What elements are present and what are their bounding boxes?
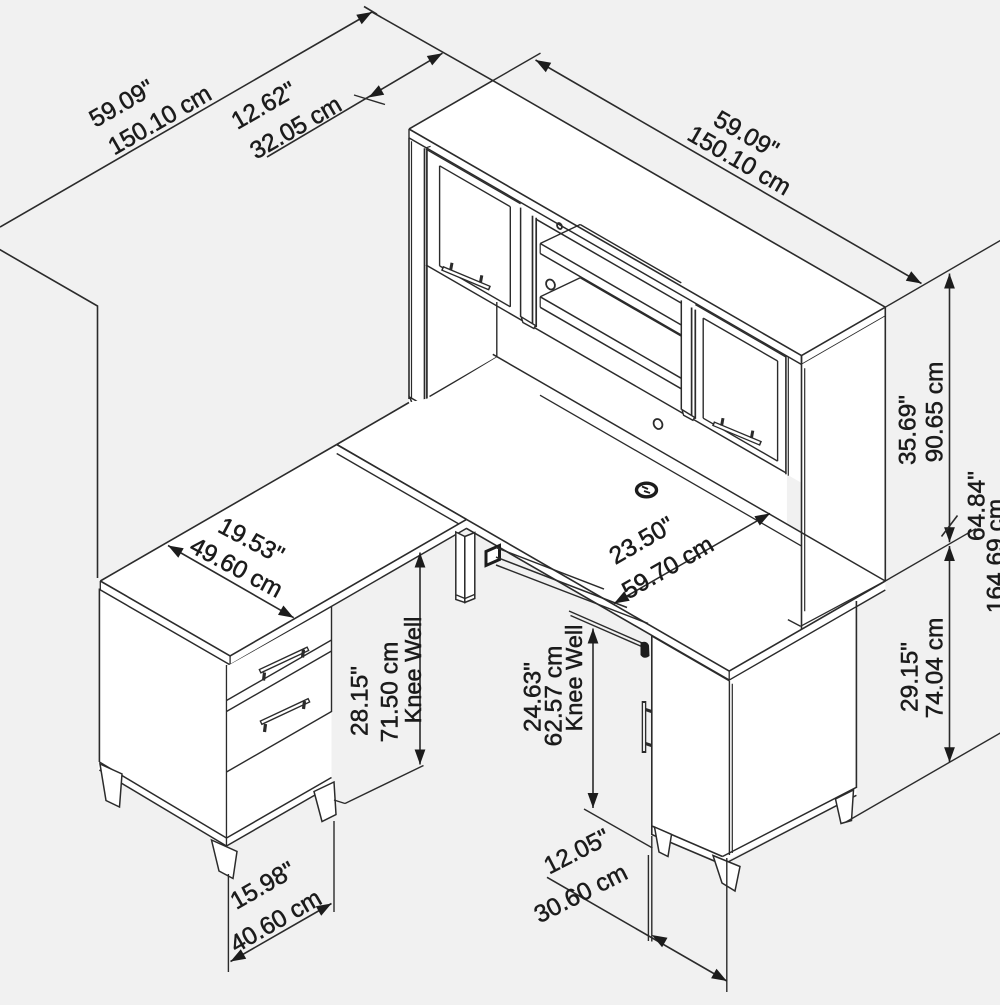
svg-text:28.15": 28.15" bbox=[347, 666, 374, 736]
svg-text:35.69": 35.69" bbox=[895, 395, 922, 465]
svg-text:Knee Well: Knee Well bbox=[400, 617, 426, 724]
svg-text:29.15": 29.15" bbox=[897, 642, 924, 712]
svg-text:164.69 cm: 164.69 cm bbox=[983, 499, 1000, 613]
svg-text:90.65 cm: 90.65 cm bbox=[922, 362, 949, 463]
svg-text:74.04 cm: 74.04 cm bbox=[922, 618, 949, 719]
svg-text:Knee Well: Knee Well bbox=[561, 625, 587, 732]
